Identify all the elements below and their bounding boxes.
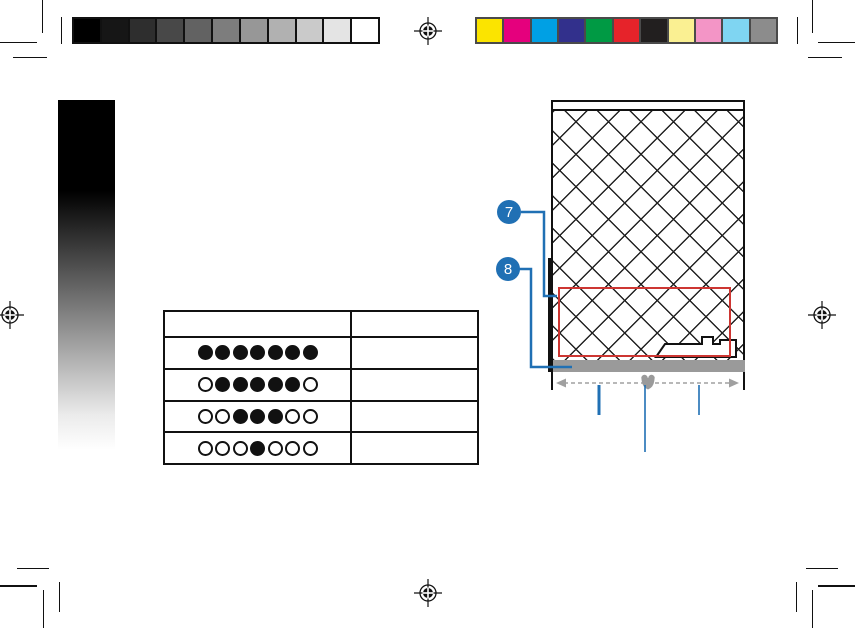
led-dot-on	[250, 409, 265, 424]
table-row	[165, 431, 477, 463]
led-dot-on	[250, 441, 265, 456]
color-swatch	[322, 19, 350, 42]
color-swatch	[211, 19, 239, 42]
table-row	[165, 368, 477, 400]
gradient-calibration-strip	[58, 100, 115, 450]
led-pattern-cell	[165, 370, 352, 400]
led-description-cell	[352, 338, 477, 368]
led-dot-on	[215, 345, 230, 360]
led-dot-on	[233, 377, 248, 392]
color-swatch	[74, 19, 100, 42]
table-row	[165, 400, 477, 432]
led-pattern-cell	[165, 433, 352, 463]
center-marker-icon	[642, 378, 655, 390]
crop-mark	[797, 17, 799, 44]
color-swatch	[239, 19, 267, 42]
manual-page: 7 8	[0, 0, 855, 628]
crop-mark	[43, 590, 45, 628]
registration-mark-icon	[413, 16, 443, 46]
color-swatch	[721, 19, 748, 42]
led-dot-on	[233, 345, 248, 360]
led-description-cell	[352, 370, 477, 400]
color-swatch	[557, 19, 584, 42]
color-swatch	[612, 19, 639, 42]
color-swatch	[530, 19, 557, 42]
led-dot-off	[285, 409, 300, 424]
led-dot-on	[303, 345, 318, 360]
right-arrowhead-icon	[729, 379, 739, 388]
led-dot-on	[268, 345, 283, 360]
callout-number: 7	[505, 205, 513, 220]
registration-mark-icon	[807, 300, 837, 330]
led-dot-off	[303, 377, 318, 392]
color-swatch	[267, 19, 295, 42]
led-dot-off	[268, 441, 283, 456]
led-dot-on	[250, 345, 265, 360]
led-dot-on	[285, 377, 300, 392]
color-swatch	[350, 19, 378, 42]
led-dot-off	[198, 441, 213, 456]
crop-mark	[59, 582, 61, 612]
led-dot-on	[215, 377, 230, 392]
callout-7-leader-line	[521, 212, 557, 296]
led-dot-off	[303, 409, 318, 424]
crop-mark	[61, 17, 63, 44]
crop-mark	[808, 57, 842, 59]
color-swatch	[667, 19, 694, 42]
registration-mark-icon	[0, 300, 25, 330]
led-dot-off	[285, 441, 300, 456]
color-swatch	[749, 19, 776, 42]
crop-mark	[0, 585, 37, 587]
crop-mark	[806, 568, 838, 570]
led-description-cell	[352, 433, 477, 463]
registration-mark-icon	[413, 578, 443, 608]
crop-mark	[0, 42, 37, 44]
led-dot-on	[268, 409, 283, 424]
crop-mark	[42, 0, 44, 33]
table-header-led-cell	[165, 312, 352, 336]
led-pattern-cell	[165, 402, 352, 432]
color-swatch	[155, 19, 183, 42]
crop-mark	[818, 585, 855, 587]
table-header-row	[165, 312, 477, 336]
crop-mark	[13, 57, 47, 59]
color-swatch	[128, 19, 156, 42]
led-status-table	[163, 310, 479, 465]
led-dot-on	[198, 345, 213, 360]
grayscale-calibration-bar	[72, 17, 380, 44]
led-dot-off	[198, 377, 213, 392]
led-dot-on	[285, 345, 300, 360]
color-swatch	[502, 19, 529, 42]
left-arrowhead-icon	[556, 379, 566, 388]
color-swatch	[100, 19, 128, 42]
crop-mark	[818, 42, 855, 44]
led-dot-off	[198, 409, 213, 424]
figure-annotation-overlay	[490, 90, 770, 560]
color-swatch	[295, 19, 323, 42]
table-row	[165, 336, 477, 368]
crop-mark	[812, 590, 814, 628]
color-swatch	[694, 19, 721, 42]
callout-badge-7: 7	[497, 200, 521, 224]
led-description-cell	[352, 402, 477, 432]
color-swatch	[639, 19, 666, 42]
color-swatch	[183, 19, 211, 42]
led-dot-off	[215, 441, 230, 456]
crop-mark	[796, 582, 798, 612]
callout-badge-8: 8	[496, 257, 520, 281]
led-pattern-cell	[165, 338, 352, 368]
crop-mark	[17, 568, 49, 570]
led-dot-off	[215, 409, 230, 424]
led-dot-on	[268, 377, 283, 392]
color-swatch	[477, 19, 502, 42]
table-header-description-cell	[352, 312, 477, 336]
led-dot-off	[233, 441, 248, 456]
led-dot-off	[303, 441, 318, 456]
led-dot-on	[233, 409, 248, 424]
crop-mark	[812, 0, 814, 33]
led-dot-on	[250, 377, 265, 392]
color-swatch	[584, 19, 611, 42]
color-calibration-bar	[475, 17, 778, 44]
callout-number: 8	[504, 262, 512, 277]
